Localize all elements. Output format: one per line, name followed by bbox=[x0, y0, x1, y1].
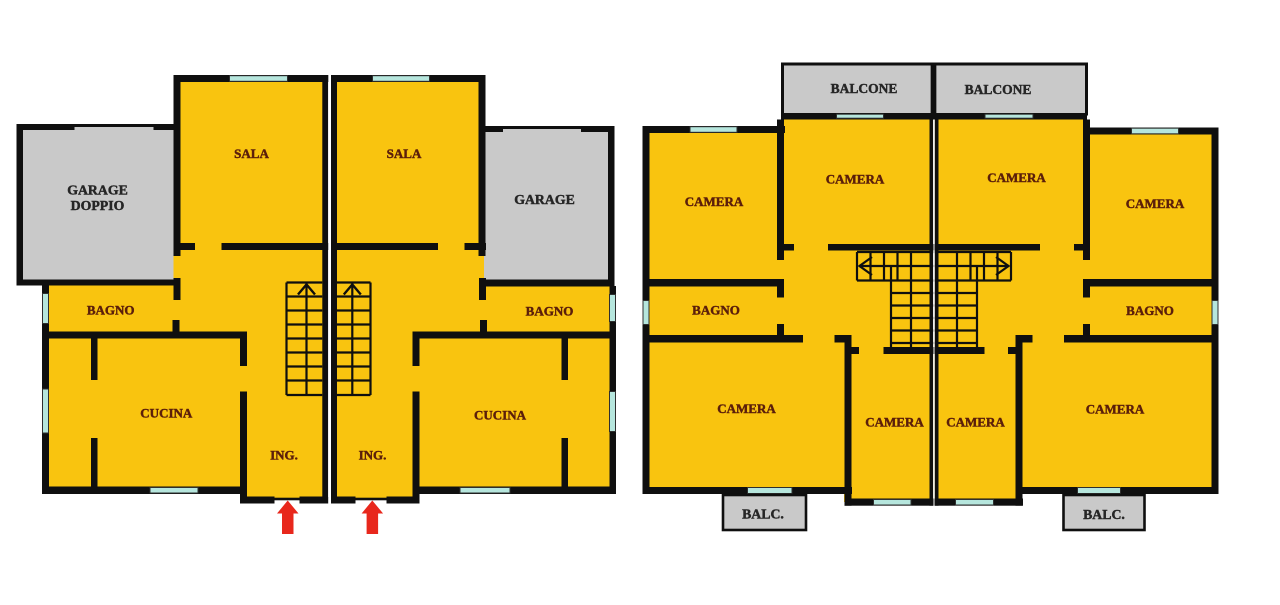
svg-text:BALC.: BALC. bbox=[1083, 507, 1125, 522]
svg-text:CAMERA: CAMERA bbox=[987, 170, 1046, 185]
svg-text:CUCINA: CUCINA bbox=[140, 406, 193, 421]
svg-text:CUCINA: CUCINA bbox=[474, 408, 527, 423]
svg-text:BAGNO: BAGNO bbox=[526, 304, 574, 319]
svg-text:CAMERA: CAMERA bbox=[717, 401, 776, 416]
svg-text:CAMERA: CAMERA bbox=[946, 415, 1005, 430]
svg-text:BALCONE: BALCONE bbox=[965, 82, 1032, 97]
svg-text:BAGNO: BAGNO bbox=[692, 303, 740, 318]
svg-text:CAMERA: CAMERA bbox=[865, 415, 924, 430]
svg-text:CAMERA: CAMERA bbox=[1126, 196, 1185, 211]
svg-text:CAMERA: CAMERA bbox=[685, 194, 744, 209]
svg-text:SALA: SALA bbox=[234, 146, 269, 161]
svg-text:GARAGE: GARAGE bbox=[514, 192, 575, 207]
svg-text:SALA: SALA bbox=[387, 146, 422, 161]
svg-text:BAGNO: BAGNO bbox=[1126, 303, 1174, 318]
svg-text:ING.: ING. bbox=[270, 448, 298, 463]
svg-text:CAMERA: CAMERA bbox=[826, 172, 885, 187]
svg-text:DOPPIO: DOPPIO bbox=[71, 198, 125, 213]
svg-text:GARAGE: GARAGE bbox=[67, 183, 128, 198]
svg-text:CAMERA: CAMERA bbox=[1086, 402, 1145, 417]
svg-text:ING.: ING. bbox=[359, 448, 387, 463]
svg-text:BAGNO: BAGNO bbox=[87, 303, 135, 318]
svg-text:BALC.: BALC. bbox=[742, 507, 784, 522]
svg-text:BALCONE: BALCONE bbox=[831, 81, 898, 96]
